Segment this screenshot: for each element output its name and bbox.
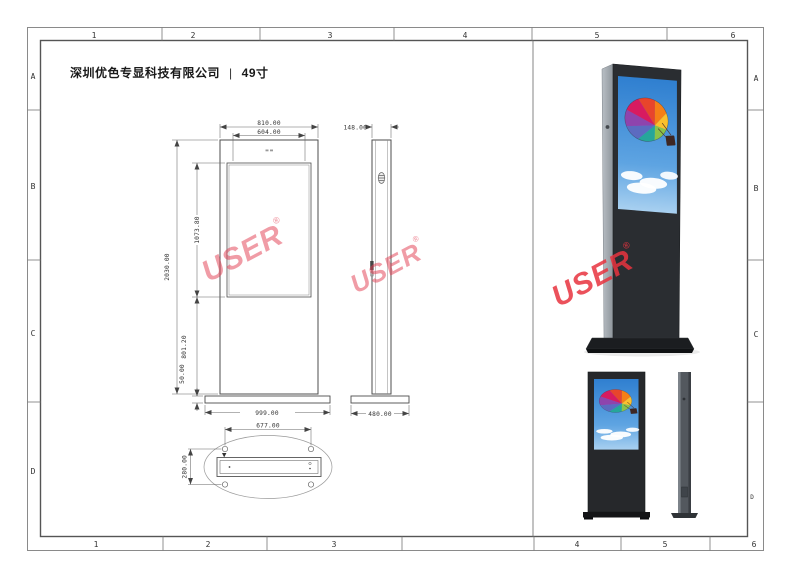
front-base-plate <box>205 396 330 403</box>
grid-label: 5 <box>663 540 668 549</box>
drawing-sheet: 1 2 3 4 5 6 1 2 3 4 5 6 A B C D A B C D <box>0 0 790 574</box>
dim-front-lower-section: 801.20 <box>181 335 188 359</box>
render-3d-main: USER ® <box>545 64 700 357</box>
grid-label: 2 <box>191 31 196 40</box>
grid-label: 4 <box>575 540 580 549</box>
datum-marker <box>222 453 226 457</box>
bottom-view-drawing: 677.00 280.00 <box>182 423 333 499</box>
bolt-hole <box>222 446 227 451</box>
grid-label: 5 <box>595 31 600 40</box>
kiosk-front-small-screen <box>594 379 640 450</box>
grid-label: 3 <box>328 31 333 40</box>
dim-front-base-width: 999.00 <box>255 410 279 417</box>
dim-bottom-bolt-span: 677.00 <box>256 423 280 430</box>
grid-label: C <box>754 330 759 339</box>
title-block: 深圳优色专显科技有限公司|49寸 <box>70 64 269 81</box>
grid-ticks-left <box>28 110 41 402</box>
base-foot <box>584 518 593 520</box>
grid-ticks-top <box>162 28 667 41</box>
render-side-small <box>671 372 698 518</box>
render-front-small <box>583 372 650 520</box>
grid-label: D <box>750 494 754 501</box>
kiosk-base-plinth <box>586 338 694 349</box>
grid-label: C <box>31 329 36 338</box>
grid-label: B <box>31 182 36 191</box>
kiosk-base-foot <box>586 349 694 353</box>
dim-side-base-depth: 480.00 <box>368 411 392 418</box>
camera-dot <box>683 398 686 401</box>
plate-mark <box>229 466 231 468</box>
kiosk-side-face <box>602 64 613 345</box>
bolt-hole <box>222 482 227 487</box>
dim-front-base-plate: 50.00 <box>179 364 186 384</box>
front-logo-mark <box>270 150 273 152</box>
company-name: 深圳优色专显科技有限公司 <box>70 66 220 80</box>
dim-front-outer-width: 810.00 <box>257 120 281 127</box>
grid-label: A <box>31 72 36 81</box>
grid-label: 2 <box>206 540 211 549</box>
title-divider: | <box>229 66 233 80</box>
kiosk-side-small-base <box>671 513 698 518</box>
base-foot <box>640 518 649 520</box>
access-panel <box>682 487 688 497</box>
front-logo-mark <box>266 150 269 152</box>
dim-bottom-bolt-depth: 280.00 <box>182 455 189 479</box>
grid-label: 6 <box>752 540 757 549</box>
grid-label: 1 <box>94 540 99 549</box>
grid-ticks-bottom <box>163 537 710 551</box>
dim-front-screen-height: 1073.80 <box>194 216 201 244</box>
drawing-canvas: 1 2 3 4 5 6 1 2 3 4 5 6 A B C D A B C D <box>0 0 790 574</box>
kiosk-side-small-shade <box>688 372 691 513</box>
grid-label: 6 <box>731 31 736 40</box>
plate-mark <box>309 468 311 470</box>
grid-label: 1 <box>92 31 97 40</box>
grid-label: 3 <box>332 540 337 549</box>
model-size-label: 49寸 <box>242 66 269 80</box>
dim-side-depth: 148.00 <box>343 124 367 131</box>
kiosk-screen-image <box>618 76 679 214</box>
dim-front-screen-width: 604.00 <box>257 129 281 136</box>
grid-label: D <box>31 467 36 476</box>
dim-front-total-height: 2030.00 <box>164 253 171 281</box>
grid-label: A <box>754 74 759 83</box>
kiosk-front-small-base <box>583 512 650 518</box>
grid-label: B <box>754 184 759 193</box>
bolt-hole <box>308 482 313 487</box>
kiosk-side-small-highlight <box>678 372 681 513</box>
side-vent-detail <box>378 173 385 184</box>
bolt-hole <box>308 446 313 451</box>
grid-label: 4 <box>463 31 468 40</box>
camera-dot <box>606 125 610 129</box>
side-base-plate <box>351 396 409 403</box>
grid-ticks-right <box>748 110 764 402</box>
